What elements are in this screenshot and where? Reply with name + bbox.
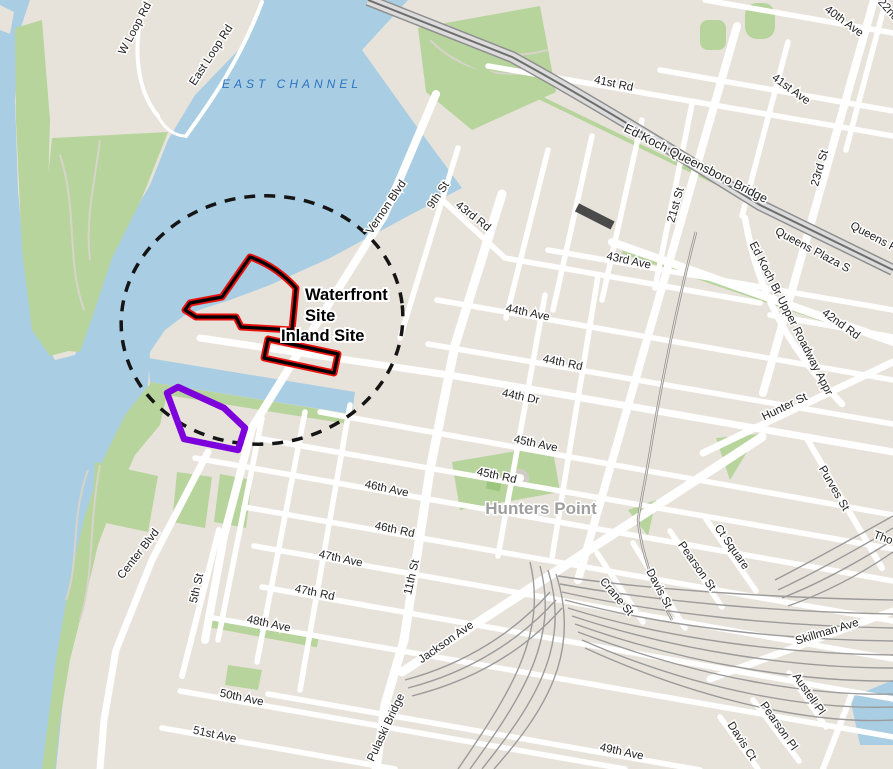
label-waterfront-site-line2: Site [305,307,335,325]
label-east-channel: EAST CHANNEL [222,77,362,91]
map-svg: W Loop Rd East Loop Rd EAST CHANNEL 40th… [0,0,893,769]
label-waterfront-site-line1: Waterfront [305,286,388,304]
small-park [700,20,726,50]
site-location-map: W Loop Rd East Loop Rd EAST CHANNEL 40th… [0,0,893,769]
label-hunters-point: Hunters Point [485,499,597,518]
label-inland-site: Inland Site [281,327,364,345]
